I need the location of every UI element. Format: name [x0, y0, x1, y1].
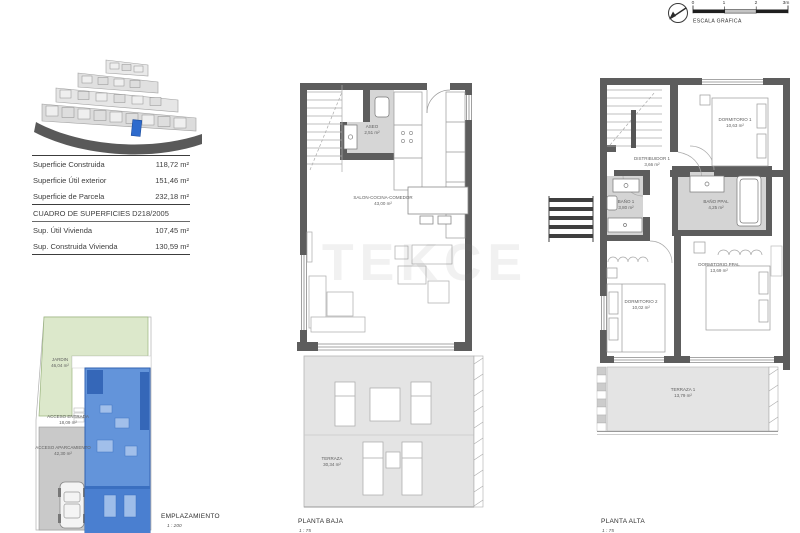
closet-scallops — [608, 250, 762, 262]
table-row: Sup. Construida Vivienda 130,59 m² — [32, 238, 190, 254]
terrace-floor — [304, 356, 474, 507]
surface-summary-table: Superficie Construida 118,72 m² Superfic… — [32, 155, 190, 255]
label-dormitorio-2: DORMITORIO 2 10,02 m² — [625, 299, 658, 311]
table-section-title: CUADRO DE SUPERFICIES D218/2005 — [32, 204, 190, 222]
scale-tick-1: 1 — [723, 1, 726, 6]
terrace1-left-edge — [597, 367, 606, 431]
row-value: 151,46 m² — [155, 176, 189, 185]
label-bano-1: BAÑO 1 3,80 m² — [618, 199, 635, 211]
row-label: Superficie Construida — [33, 160, 105, 169]
row-label: Sup. Útil Vivienda — [33, 226, 92, 235]
label-jardin: JARDIN 46,04 m² — [51, 357, 69, 369]
table-row: Superficie de Parcela 232,18 m² — [32, 188, 190, 204]
pergola-element — [549, 196, 593, 242]
watermark: TEKCE — [300, 233, 550, 293]
planta-alta-scale: 1 : 75 — [602, 529, 614, 533]
planta-alta-title: PLANTA ALTA — [601, 518, 645, 525]
label-acceso-entrada: ACCESO ENTRADA 18,09 m² — [47, 414, 89, 426]
label-terraza: TERRAZA 30,34 m² — [321, 456, 342, 468]
row-value: 118,72 m² — [156, 160, 189, 169]
label-distribuidor-1: DISTRIBUIDOR 1 3,66 m² — [634, 156, 670, 168]
row-label: Superficie Útil exterior — [33, 176, 106, 185]
stair-rail — [631, 110, 636, 148]
row-label: Sup. Construida Vivienda — [33, 242, 118, 251]
planta-baja-scale: 1 : 75 — [299, 529, 311, 533]
label-terraza-1: TERRAZA 1 13,79 m² — [671, 387, 696, 399]
row-value: 107,45 m² — [155, 226, 189, 235]
row-label: Superficie de Parcela — [33, 192, 104, 201]
highlighted-dwelling — [85, 368, 150, 533]
label-dormitorio-1: DORMITORIO 1 10,63 m² — [719, 117, 752, 129]
terrace1-hatch-edge — [769, 367, 778, 431]
site-plan-title: EMPLAZAMIENTO — [161, 513, 220, 520]
label-acceso-aparcamiento: ACCESO APARCAMIENTO 42,30 m² — [35, 445, 91, 457]
label-salon: SALON-COCINA-COMEDOR 43,00 m² — [353, 195, 412, 207]
scale-tick-0: 0 — [692, 1, 695, 6]
scale-bar-label: ESCALA GRÁFICA — [693, 19, 742, 24]
row-value: 130,59 m² — [155, 242, 189, 251]
car-icon — [58, 482, 86, 528]
development-3d-rendering — [34, 60, 202, 154]
table-row: Superficie Construida 118,72 m² — [32, 156, 190, 172]
table-row: Superficie Útil exterior 151,46 m² — [32, 172, 190, 188]
stairs — [307, 85, 342, 172]
scale-tick-3: 3m — [783, 1, 790, 6]
row-value: 232,18 m² — [155, 192, 189, 201]
north-arrow-icon — [669, 4, 688, 23]
label-dormitorio-ppal: DORMITORIO PPAL 13,69 m² — [698, 262, 740, 274]
label-aseo: ASEO 2,51 m² — [364, 124, 379, 136]
planta-alta-drawing — [549, 78, 790, 435]
highlighted-unit-marker — [131, 120, 142, 137]
floorplan-sheet: TEKCE 0 1 2 3m ESCALA GRÁFICA Superficie… — [0, 0, 800, 533]
scale-bar — [693, 6, 788, 14]
site-plan-scale: 1 : 200 — [167, 524, 182, 529]
table-row: Sup. Útil Vivienda 107,45 m² — [32, 222, 190, 238]
planta-baja-title: PLANTA BAJA — [298, 518, 343, 525]
planta-baja-drawing — [297, 83, 483, 507]
label-bano-ppal: BAÑO PPAL 4,25 m² — [703, 199, 728, 211]
scale-tick-2: 2 — [755, 1, 758, 6]
terrace-hatch-edge — [474, 356, 483, 507]
